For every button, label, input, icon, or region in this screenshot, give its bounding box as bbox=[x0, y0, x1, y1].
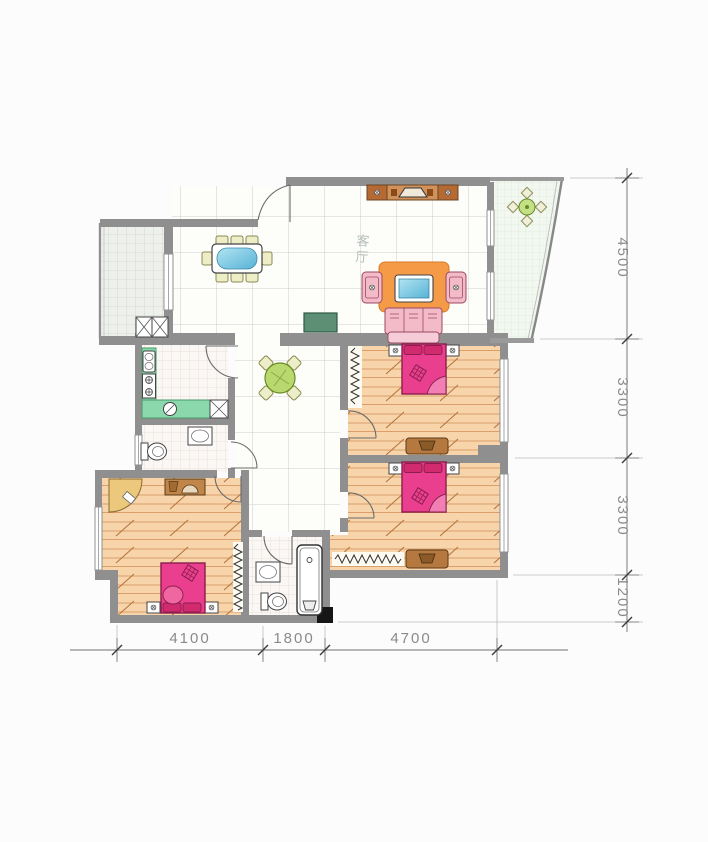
bed2 bbox=[402, 462, 446, 512]
bedroom3-dresser bbox=[165, 479, 205, 495]
dim-label-4100: 4100 bbox=[169, 630, 210, 647]
dim-label-1800: 1800 bbox=[273, 630, 314, 647]
hall-floor-lower bbox=[249, 470, 340, 532]
dim-label-3300b: 3300 bbox=[614, 495, 631, 536]
bed1 bbox=[402, 344, 446, 394]
bathroom2-toilet bbox=[261, 593, 287, 610]
armchair-right bbox=[446, 272, 466, 303]
floorplan-page: 4500 3300 3300 1200 4100 1800 4700 客厅 bbox=[0, 0, 708, 842]
bathroom2-bathtub bbox=[297, 545, 322, 615]
tv-cabinet bbox=[367, 185, 458, 200]
dim-label-4700: 4700 bbox=[390, 630, 431, 647]
bedroom2-desk bbox=[406, 550, 448, 568]
hall-floor-upper bbox=[235, 333, 340, 470]
bedroom1-dresser bbox=[406, 438, 448, 454]
dim-label-3300a: 3300 bbox=[614, 377, 631, 418]
bed3 bbox=[161, 563, 205, 613]
floorplan-canvas: 4500 3300 3300 1200 4100 1800 4700 bbox=[0, 0, 708, 842]
dim-label-1200: 1200 bbox=[614, 577, 631, 618]
armchair-left bbox=[362, 272, 382, 303]
entry-cabinet bbox=[304, 313, 337, 332]
balcony-washer-units bbox=[136, 317, 168, 337]
bathroom1-toilet bbox=[141, 443, 167, 460]
kitchen-sink bbox=[143, 351, 155, 372]
living-room-label: 客厅 bbox=[351, 234, 372, 267]
dim-label-4500: 4500 bbox=[614, 237, 631, 278]
loveseat bbox=[385, 308, 442, 343]
